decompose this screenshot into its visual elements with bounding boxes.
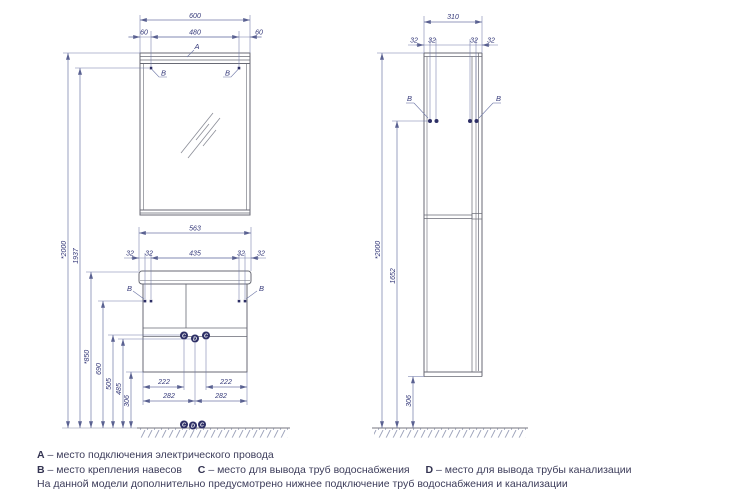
dim-2000-left: *2000	[61, 241, 68, 259]
dim-435: 435	[189, 251, 201, 258]
dim-60-right: 60	[255, 30, 263, 37]
legend-line-a: A – место подключения электрического про…	[37, 448, 697, 463]
dim-690: 690	[96, 363, 103, 375]
point-b-tall-left: B	[407, 94, 412, 103]
dim-1937: 1937	[73, 247, 80, 264]
right-top-dimensions	[408, 16, 498, 119]
floor-right	[372, 428, 528, 438]
legend-line-bcd: B – место крепления навесов C – место дл…	[37, 463, 697, 478]
dim-32-b: 32	[145, 251, 153, 258]
dim-310: 310	[447, 14, 459, 21]
dim-2000-right: *2000	[375, 241, 382, 259]
point-a-label: A	[193, 42, 199, 51]
vanity-top-dimensions	[124, 227, 266, 299]
dim-32-r4: 32	[487, 38, 495, 45]
legend-text-c: – место для вывода труб водоснабжения	[208, 464, 409, 476]
installation-drawing: 600 60 480 60 A B B	[0, 0, 735, 496]
tall-cabinet-hanger-points	[406, 103, 501, 123]
dim-32-c: 32	[237, 251, 245, 258]
dim-505: 505	[106, 378, 113, 390]
dim-60-left: 60	[140, 30, 148, 37]
dim-485: 485	[116, 383, 123, 395]
dim-32-a: 32	[126, 251, 134, 258]
tall-cabinet	[424, 53, 482, 377]
legend: A – место подключения электрического про…	[37, 448, 697, 492]
point-b-tall-right: B	[496, 94, 501, 103]
dim-282-left: 282	[162, 393, 175, 400]
point-b-mirror-left: B	[161, 69, 166, 78]
floor-left	[62, 428, 290, 438]
dim-563: 563	[189, 226, 201, 233]
point-b-vanity-right: B	[259, 284, 264, 293]
point-b-vanity-left: B	[127, 284, 132, 293]
dim-850: *850	[84, 350, 91, 365]
right-view-side: 310 32 32 32 32 B B *2000 1652 306	[372, 14, 528, 438]
dim-32-r3: 32	[470, 38, 478, 45]
technical-drawing-page: 600 60 480 60 A B B	[0, 0, 735, 496]
legend-key-a: A	[37, 449, 45, 461]
legend-text-a: – место подключения электрического прово…	[48, 449, 274, 461]
legend-note: На данной модели дополнительно предусмот…	[37, 477, 697, 492]
point-b-mirror-right: B	[225, 69, 230, 78]
dim-282-right: 282	[214, 393, 227, 400]
legend-key-c: C	[198, 464, 206, 476]
dim-306-right: 306	[406, 395, 413, 407]
point-d-label: D	[193, 337, 197, 343]
floor-point-d-label: D	[191, 424, 195, 430]
legend-key-b: B	[37, 464, 45, 476]
dim-1652: 1652	[390, 268, 397, 284]
legend-key-d: D	[425, 464, 433, 476]
mirror-cabinet	[140, 53, 250, 215]
dim-32-r1: 32	[410, 38, 418, 45]
dim-32-r2: 32	[428, 38, 436, 45]
dim-222-left: 222	[157, 379, 170, 386]
legend-text-d: – место для вывода трубы канализации	[436, 464, 632, 476]
dim-306-left: 306	[124, 395, 131, 407]
dim-600: 600	[189, 13, 201, 20]
dim-32-d: 32	[257, 251, 265, 258]
right-height-dimensions	[377, 53, 428, 428]
dim-222-right: 222	[219, 379, 232, 386]
vanity-hanger-points	[133, 291, 257, 302]
dim-480: 480	[189, 30, 201, 37]
legend-text-b: – место крепления навесов	[48, 464, 182, 476]
left-view-front: 600 60 480 60 A B B	[61, 13, 290, 438]
mirror-glass-icon	[181, 113, 220, 158]
